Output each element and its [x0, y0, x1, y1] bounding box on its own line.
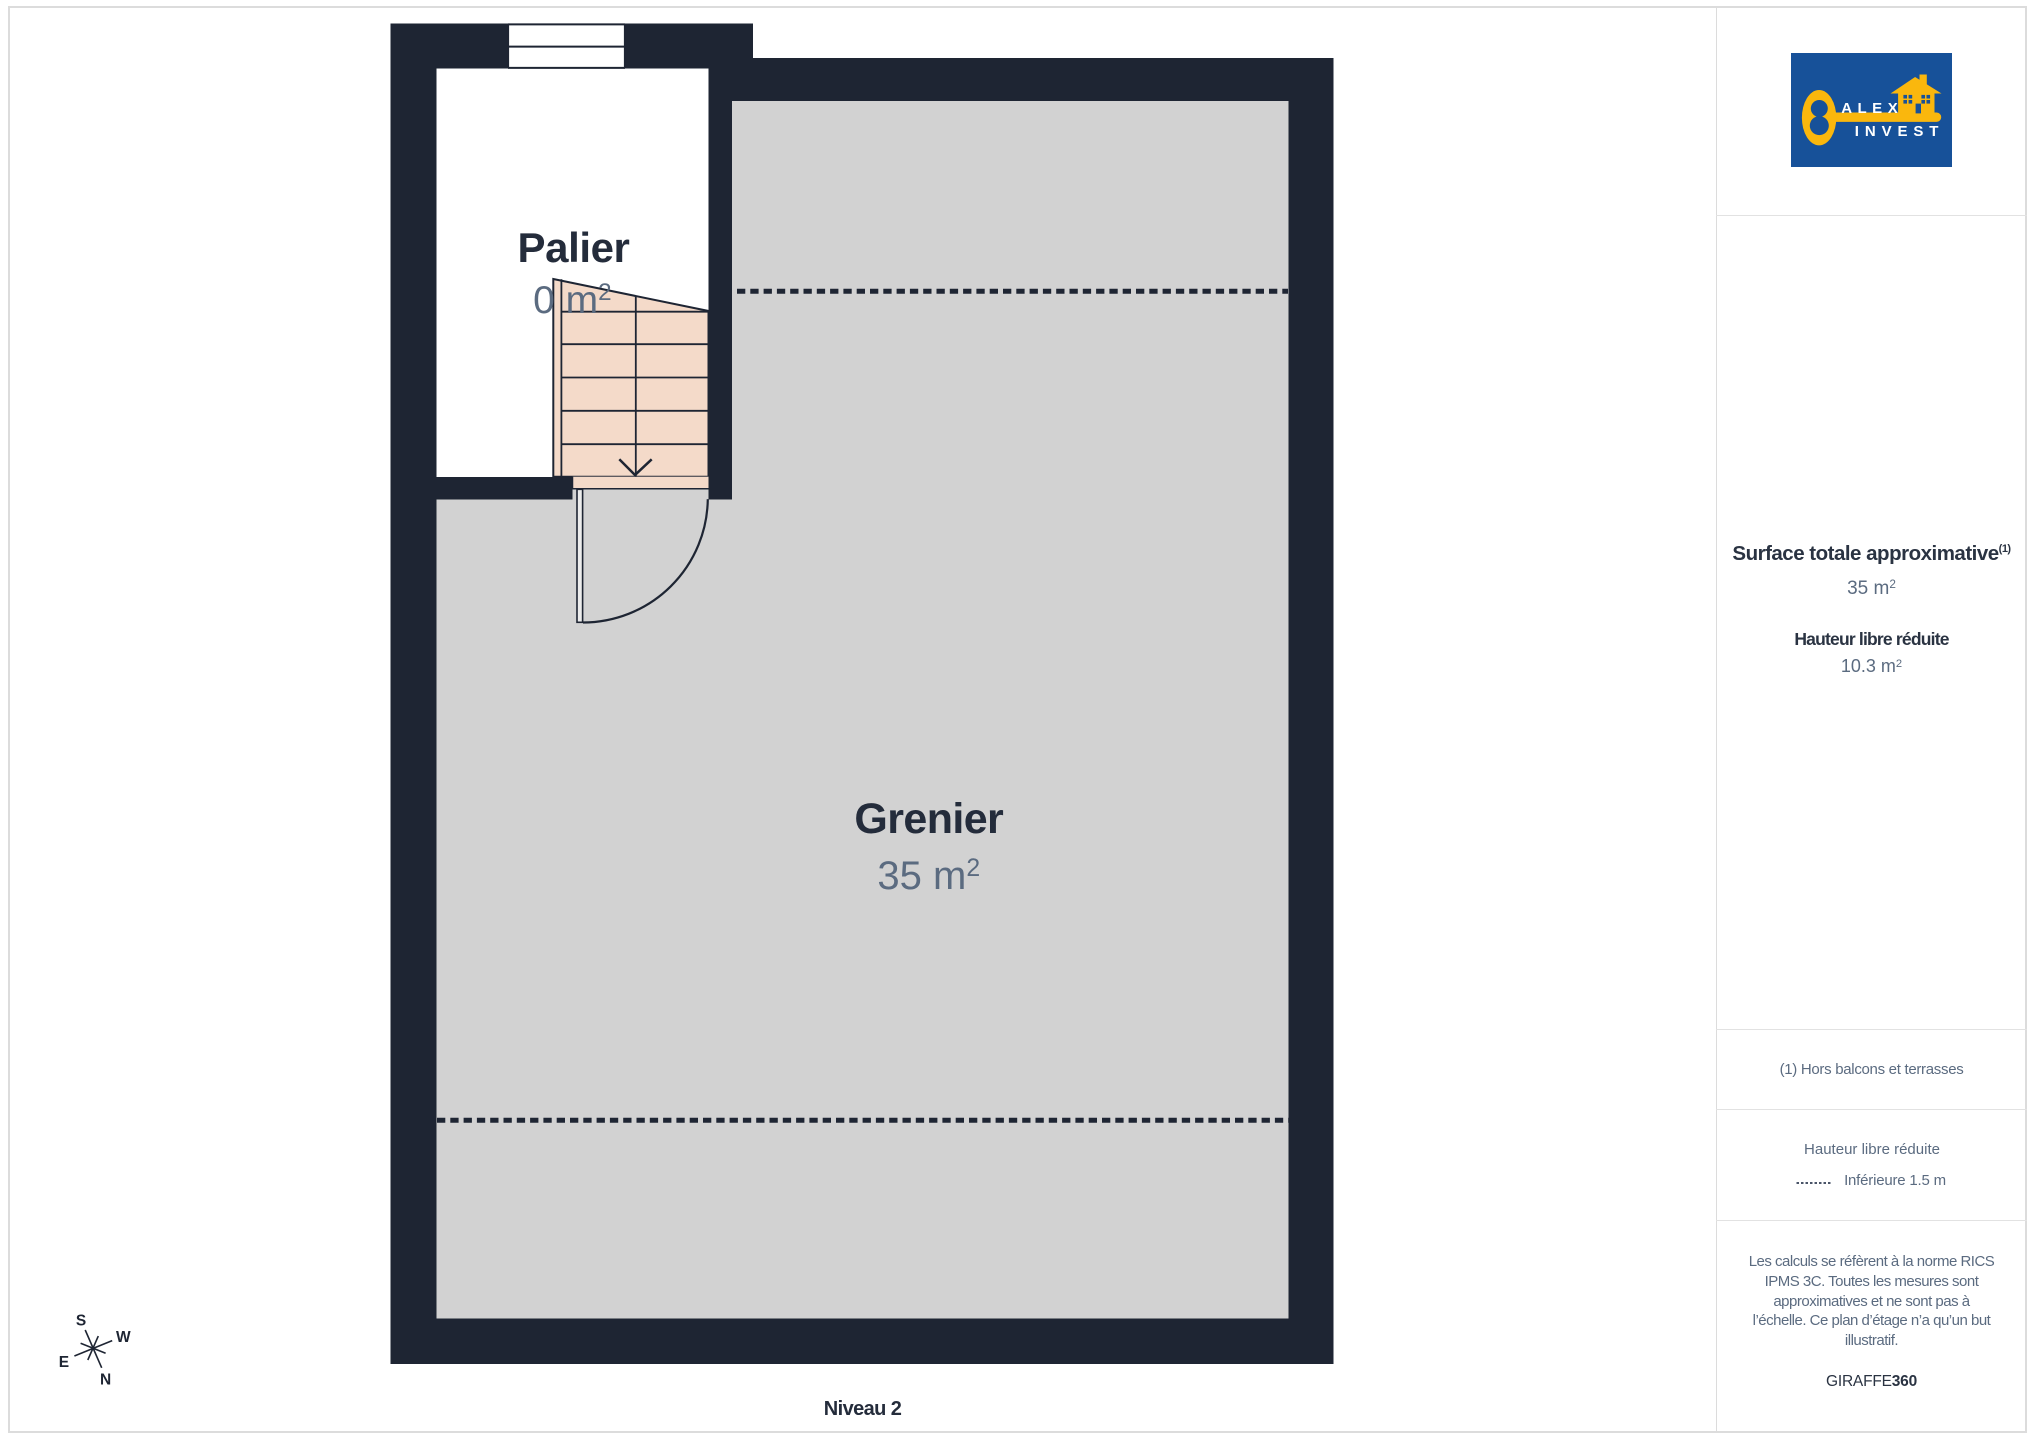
svg-text:W: W	[116, 1329, 131, 1346]
svg-text:INVEST: INVEST	[1855, 123, 1945, 140]
svg-text:N: N	[100, 1372, 111, 1389]
svg-text:E: E	[59, 1354, 69, 1371]
svg-text:ALEX: ALEX	[1841, 100, 1903, 117]
svg-text:S: S	[76, 1313, 86, 1330]
